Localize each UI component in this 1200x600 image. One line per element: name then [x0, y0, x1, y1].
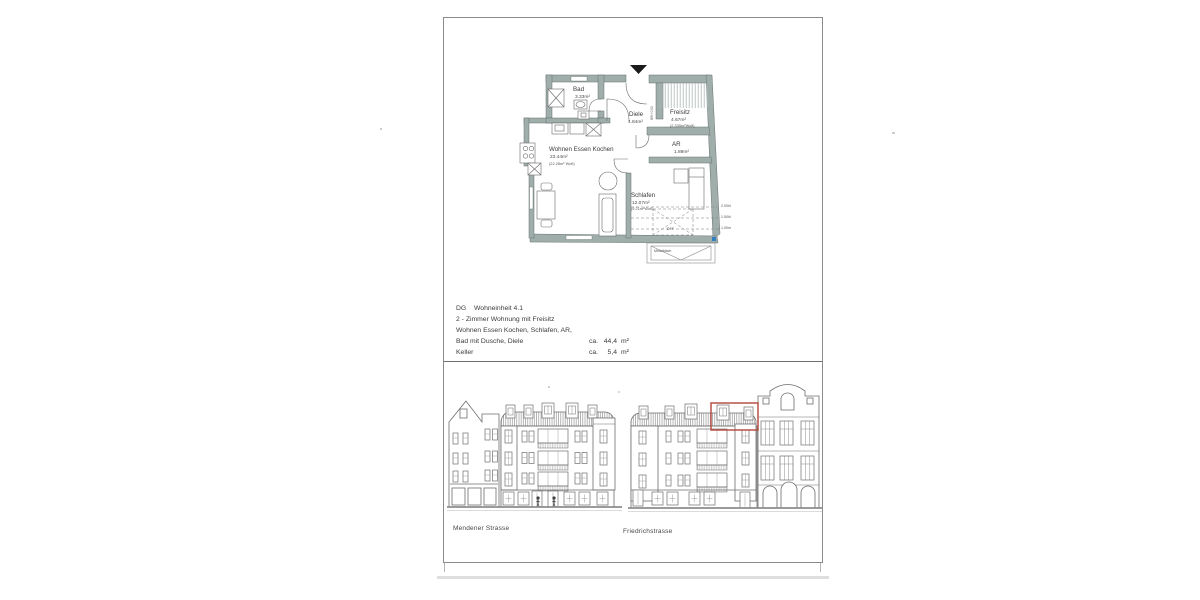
- ornate-building: [758, 385, 819, 509]
- street-label-friedrich: Friedrichstrasse: [623, 528, 672, 535]
- info-line3: Wohnen Essen Kochen, Schlafen, AR,: [456, 327, 572, 334]
- info-unit-title: Wohneinheit 4.1: [474, 305, 523, 312]
- room-area-diele: 4.84m²: [628, 120, 643, 125]
- room-area2-schlafen: (9.21m²Wofl): [631, 207, 653, 211]
- room-area-ar: 1.89m²: [674, 150, 689, 155]
- dff-annotation: DFF: [667, 228, 674, 232]
- info-line5-value: 5,4: [593, 349, 617, 356]
- street-label-mendener: Mendener Strasse: [453, 525, 509, 532]
- height-line-200: 2.00hl: [721, 205, 731, 209]
- new-building-left: [501, 403, 615, 507]
- freisitz-decking: [659, 83, 708, 108]
- info-line5-label: Keller: [456, 349, 473, 356]
- info-line2: 2 - Zimmer Wohnung mit Freisitz: [456, 316, 554, 323]
- metalldach-annotation: Metalldach: [654, 250, 671, 254]
- height-line-150: 1.50hl: [721, 216, 731, 220]
- room-label-schlafen: Schlafen: [631, 193, 655, 200]
- elevation-friedrichstrasse: [628, 385, 822, 512]
- scanned-page-canvas: Bad 3.33m² Diele 4.84m² BRH 0.00 Freisit…: [0, 0, 1200, 600]
- page-bottom-shadow: [437, 576, 829, 579]
- elevation-mendener-strasse: [447, 401, 622, 511]
- entrance-arrow-icon: [630, 65, 647, 74]
- room-label-ar: AR: [672, 142, 681, 149]
- height-line-100: 1.00m: [721, 227, 731, 231]
- info-dg: DG: [456, 305, 466, 312]
- room-label-bad: Bad: [573, 87, 584, 94]
- info-line5-unit: m²: [621, 349, 629, 356]
- scan-speck: [892, 132, 895, 134]
- room-label-freisitz: Freisitz: [670, 110, 690, 117]
- room-area2-wek: (22.28m² Wofl): [549, 162, 575, 166]
- scan-speck: [380, 128, 382, 130]
- room-area-wek: 23.44m²: [550, 155, 568, 160]
- document-sheet: Bad 3.33m² Diele 4.84m² BRH 0.00 Freisit…: [443, 17, 823, 563]
- info-line4-label: Bad mit Dusche, Diele: [456, 338, 523, 345]
- info-line4-value: 44,4: [593, 338, 617, 345]
- room-label-diele: Diele: [629, 112, 643, 119]
- room-label-wek: Wohnen Essen Kochen: [549, 147, 614, 154]
- old-gabled-house: [449, 401, 499, 507]
- room-area2-freisitz: (2.335m²Wofl): [670, 124, 695, 128]
- info-line4-unit: m²: [621, 338, 629, 345]
- new-building-right: [631, 404, 757, 508]
- blue-marker: [712, 237, 716, 241]
- brh-annotation: BRH 0.00: [650, 106, 654, 120]
- room-area-bad: 3.33m²: [575, 95, 590, 100]
